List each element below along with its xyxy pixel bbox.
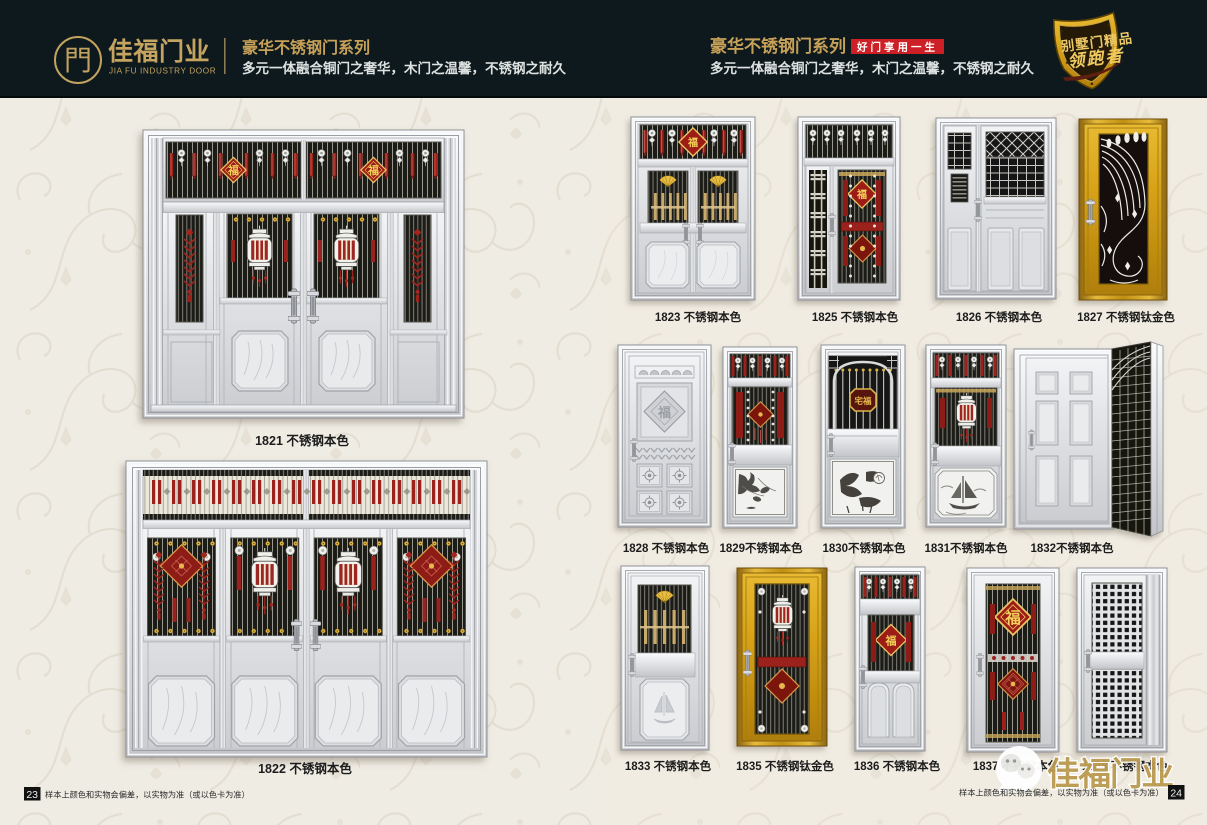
svg-text:多元一体融合铜门之奢华，木门之温馨，不锈钢之耐久: 多元一体融合铜门之奢华，木门之温馨，不锈钢之耐久 — [242, 60, 566, 76]
svg-text:豪华不锈钢门系列: 豪华不锈钢门系列 — [242, 38, 370, 57]
svg-text:多元一体融合铜门之奢华，木门之温馨，不锈钢之耐久: 多元一体融合铜门之奢华，木门之温馨，不锈钢之耐久 — [710, 60, 1034, 76]
svg-text:1832不锈钢本色: 1832不锈钢本色 — [1030, 541, 1114, 555]
svg-text:1836 不锈钢本色: 1836 不锈钢本色 — [854, 759, 941, 773]
svg-text:1829不锈钢本色: 1829不锈钢本色 — [719, 541, 803, 555]
svg-text:1827 不锈钢钛金色: 1827 不锈钢钛金色 — [1077, 310, 1175, 324]
svg-text:样本上颜色和实物会偏差，以实物为准（或以色卡为准）: 样本上颜色和实物会偏差，以实物为准（或以色卡为准） — [45, 790, 250, 800]
svg-text:好门享用一生: 好门享用一生 — [856, 41, 938, 54]
svg-text:豪华不锈钢门系列: 豪华不锈钢门系列 — [710, 36, 846, 56]
svg-text:23: 23 — [26, 789, 38, 801]
svg-text:門: 門 — [64, 46, 92, 77]
svg-text:1825 不锈钢本色: 1825 不锈钢本色 — [812, 310, 899, 324]
svg-text:佳福门业: 佳福门业 — [1047, 756, 1174, 792]
svg-text:宅福: 宅福 — [854, 396, 872, 406]
svg-text:1833 不锈钢本色: 1833 不锈钢本色 — [625, 759, 712, 773]
svg-text:佳福门业: 佳福门业 — [108, 37, 210, 66]
svg-text:1830不锈钢本色: 1830不锈钢本色 — [822, 541, 906, 555]
svg-text:1831不锈钢本色: 1831不锈钢本色 — [924, 541, 1008, 555]
svg-text:1822 不锈钢本色: 1822 不锈钢本色 — [258, 761, 352, 776]
svg-text:24: 24 — [1170, 788, 1182, 800]
svg-text:福: 福 — [687, 136, 698, 149]
svg-text:福: 福 — [657, 405, 671, 420]
svg-text:1826 不锈钢本色: 1826 不锈钢本色 — [956, 310, 1043, 324]
svg-text:福: 福 — [885, 634, 897, 648]
svg-text:1821 不锈钢本色: 1821 不锈钢本色 — [255, 433, 349, 448]
svg-text:1835 不锈钢钛金色: 1835 不锈钢钛金色 — [736, 759, 834, 773]
svg-text:1823 不锈钢本色: 1823 不锈钢本色 — [655, 310, 742, 324]
svg-text:样本上颜色和实物会偏差，以实物为准（或以色卡为准）: 样本上颜色和实物会偏差，以实物为准（或以色卡为准） — [959, 788, 1164, 798]
svg-text:福: 福 — [856, 188, 867, 201]
svg-text:JIA FU INDUSTRY DOOR: JIA FU INDUSTRY DOOR — [109, 67, 216, 76]
svg-text:1828 不锈钢本色: 1828 不锈钢本色 — [623, 541, 710, 555]
